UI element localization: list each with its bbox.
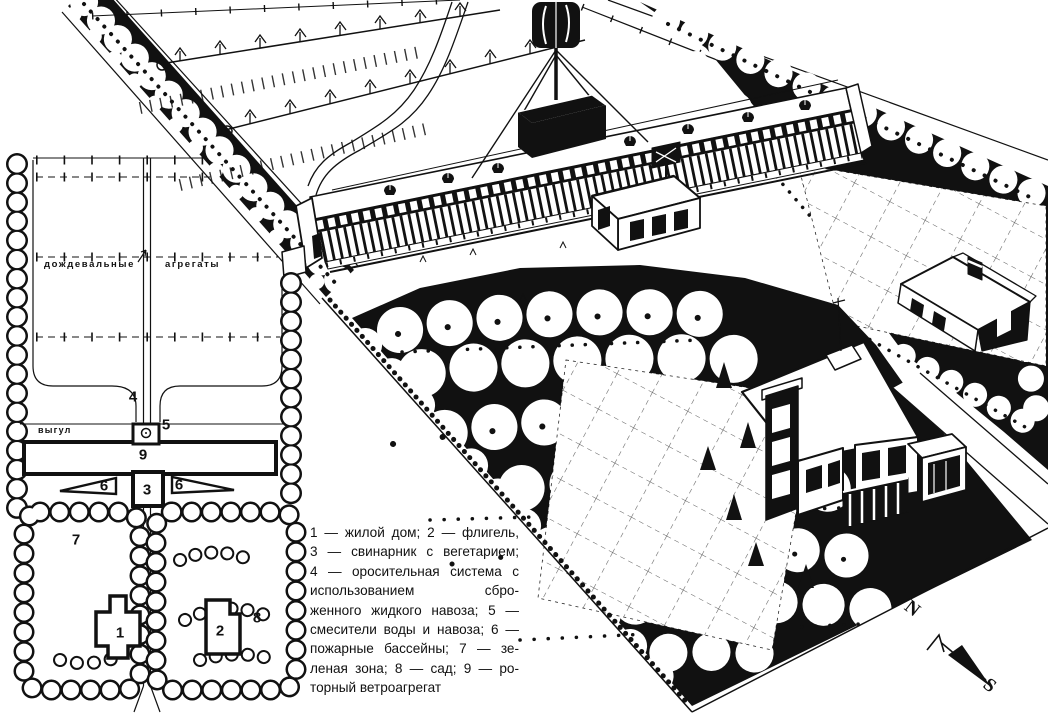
legend-line: торный ветроагрегат	[310, 678, 519, 697]
plan-marker-6b: 6	[175, 478, 183, 493]
site-plan	[17, 158, 296, 712]
legend-line: смесители воды и навоза; 6 —	[310, 620, 519, 639]
plan-marker-6a: 6	[100, 479, 108, 494]
legend-line: леная зона; 8 — сад; 9 — ро-	[310, 659, 519, 678]
plan-marker-2: 2	[216, 624, 224, 639]
legend-line: использованием сбро-	[310, 581, 519, 600]
legend-line: 1 — жилой дом; 2 — флигель,	[310, 523, 519, 542]
plan-marker-3: 3	[143, 483, 151, 498]
plan-marker-4: 4	[129, 390, 137, 405]
compass-needle	[927, 635, 991, 687]
plan-marker-9: 9	[139, 448, 147, 463]
farmstead-illustration: 1 — жилой дом; 2 — флигель, 3 — свинарни…	[0, 0, 1048, 716]
pigsty-plan	[24, 442, 276, 474]
legend-line: женного жидкого навоза; 5 —	[310, 601, 519, 620]
irrigation-label-word2: агрегаты	[165, 259, 220, 270]
figure-legend: 1 — жилой дом; 2 — флигель, 3 — свинарни…	[310, 523, 519, 698]
plan-marker-1: 1	[116, 626, 124, 641]
legend-line: 3 — свинарник с вегетарием;	[310, 542, 519, 561]
legend-line: пожарные бассейны; 7 — зе-	[310, 639, 519, 658]
plan-marker-5: 5	[162, 418, 170, 433]
legend-line: 4 — оросительная система с	[310, 562, 519, 581]
irrigation-units-label: дождевальные агрегаты	[44, 259, 220, 270]
line-art	[0, 0, 1048, 716]
plan-marker-8: 8	[253, 611, 261, 626]
plan-marker-7: 7	[72, 533, 80, 548]
paddock-label: выгул	[38, 425, 72, 435]
irrigation-label-word1: дождевальные	[44, 259, 135, 270]
